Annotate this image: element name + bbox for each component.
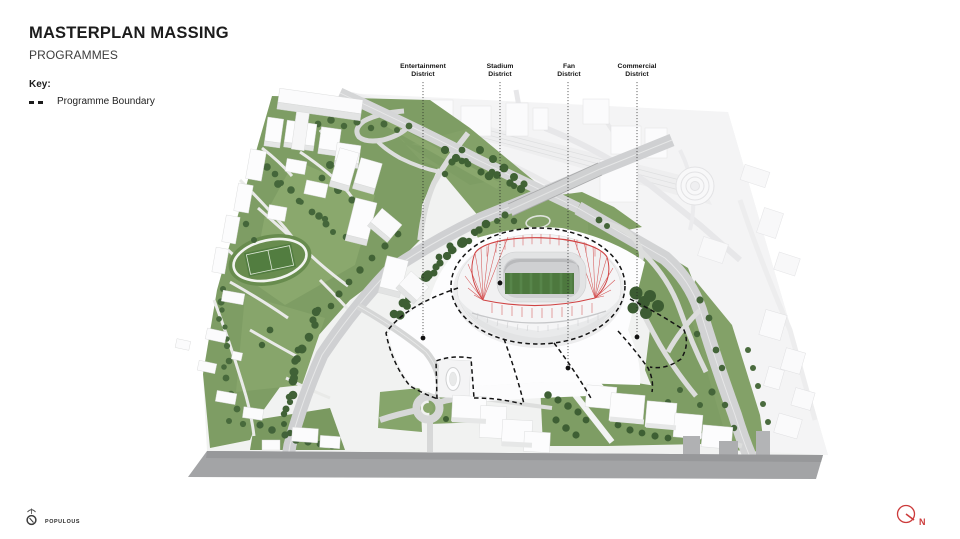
svg-text:N: N (919, 517, 926, 527)
svg-text:POPULOUS: POPULOUS (45, 519, 80, 525)
